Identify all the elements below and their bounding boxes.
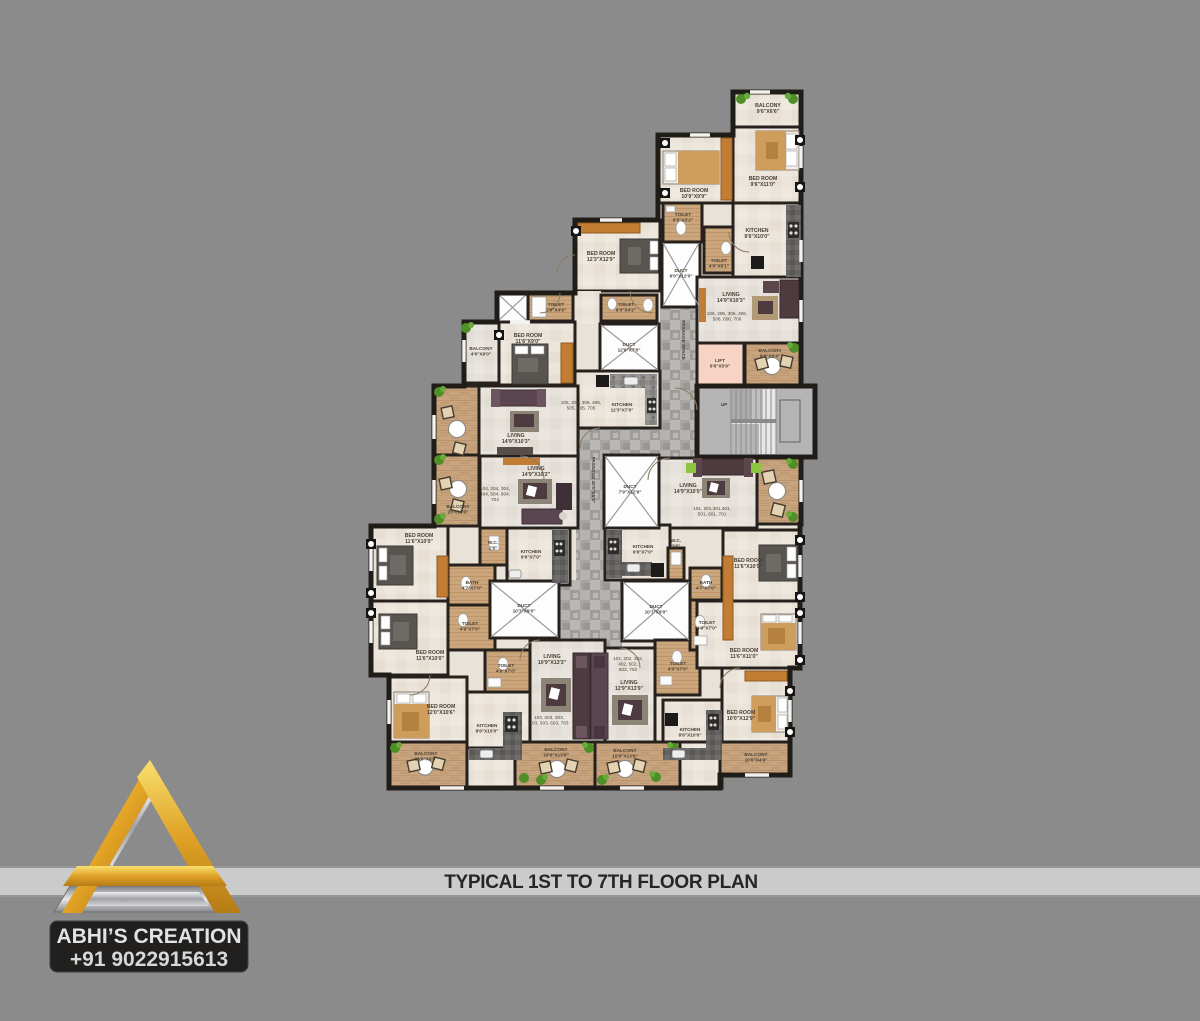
svg-text:TOILET4'0"X6'1": TOILET4'0"X6'1" bbox=[709, 258, 729, 268]
svg-text:PASSAGE SPACE: PASSAGE SPACE bbox=[681, 320, 686, 360]
svg-text:KITCHEN12'3"X7'0": KITCHEN12'3"X7'0" bbox=[611, 402, 634, 412]
svg-text:TOILET7'0"X4'9": TOILET7'0"X4'9" bbox=[546, 302, 566, 312]
svg-text:TYPICAL 1ST TO 7TH FLOOR PLAN: TYPICAL 1ST TO 7TH FLOOR PLAN bbox=[444, 872, 758, 893]
svg-text:BED ROOM10'9"X9'9": BED ROOM10'9"X9'9" bbox=[680, 188, 709, 200]
svg-text:TOILET4'0"X7'0": TOILET4'0"X7'0" bbox=[668, 661, 688, 671]
svg-text:KITCHEN8'6"X10'0": KITCHEN8'6"X10'0" bbox=[476, 723, 499, 733]
svg-text:TOILET6'0"X4'2": TOILET6'0"X4'2" bbox=[616, 302, 636, 312]
svg-text:BALCONY20'X10'0": BALCONY20'X10'0" bbox=[446, 504, 470, 514]
svg-text:BED ROOM11'6"X10'9": BED ROOM11'6"X10'9" bbox=[734, 558, 763, 570]
svg-text:BED ROOM11'6"X10'0": BED ROOM11'6"X10'0" bbox=[416, 650, 445, 662]
svg-text:BED ROOM12'0"X10'6": BED ROOM12'0"X10'6" bbox=[427, 704, 456, 716]
svg-text:KITCHEN9'9"X7'0": KITCHEN9'9"X7'0" bbox=[521, 549, 542, 559]
svg-text:BALCONY9'6"X6'6": BALCONY9'6"X6'6" bbox=[755, 103, 781, 115]
svg-text:+91 9022915613: +91 9022915613 bbox=[70, 948, 228, 971]
svg-text:W.C.2'6": W.C.2'6" bbox=[671, 538, 681, 548]
svg-text:KITCHEN9'6"X10'0": KITCHEN9'6"X10'0" bbox=[744, 228, 770, 240]
svg-text:KITCHEN8'6"X10'0": KITCHEN8'6"X10'0" bbox=[679, 727, 702, 737]
svg-text:BALCONY4'6"X9'0": BALCONY4'6"X9'0" bbox=[469, 346, 493, 356]
svg-text:W.C.2'6": W.C.2'6" bbox=[488, 540, 498, 550]
svg-text:BALCONY10'9"X13'6": BALCONY10'9"X13'6" bbox=[543, 747, 568, 757]
svg-text:BALCONY10'9"X13'6": BALCONY10'9"X13'6" bbox=[612, 748, 637, 758]
svg-text:BED ROOM10'0"X12'9": BED ROOM10'0"X12'9" bbox=[727, 710, 756, 722]
svg-text:TOILET4'9"X7'0": TOILET4'9"X7'0" bbox=[496, 663, 516, 673]
svg-text:UP: UP bbox=[721, 402, 728, 407]
svg-text:KITCHEN9'9"X7'0": KITCHEN9'9"X7'0" bbox=[633, 544, 654, 554]
svg-text:101, 201,301,401,501, 601, 701: 101, 201,301,401,501, 601, 701 bbox=[693, 506, 731, 516]
svg-text:106, 206, 306, 406,506, 606, 7: 106, 206, 306, 406,506, 606, 706 bbox=[707, 311, 747, 321]
svg-text:105, 205, 305, 405,505, 605, 7: 105, 205, 305, 405,505, 605, 705 bbox=[561, 400, 601, 410]
svg-text:BED ROOM11'6"X10'9": BED ROOM11'6"X10'9" bbox=[405, 533, 434, 545]
svg-text:BED ROOM11'6"X9'0": BED ROOM11'6"X9'0" bbox=[514, 333, 543, 345]
svg-text:BALCONY10'0"X6'9": BALCONY10'0"X6'9" bbox=[414, 751, 438, 761]
svg-text:TOILET4'9"X7'0": TOILET4'9"X7'0" bbox=[460, 621, 480, 631]
svg-text:BED ROOM9'6"X11'0": BED ROOM9'6"X11'0" bbox=[749, 176, 778, 188]
svg-text:BED ROOM11'6"X11'0": BED ROOM11'6"X11'0" bbox=[730, 648, 759, 660]
svg-text:103, 203, 303,403, 503, 603, 7: 103, 203, 303,403, 503, 603, 703 bbox=[529, 715, 568, 725]
svg-text:BED ROOM12'3"X12'9": BED ROOM12'3"X12'9" bbox=[587, 251, 616, 263]
svg-text:BALCONY10'0"X4'9": BALCONY10'0"X4'9" bbox=[744, 752, 768, 762]
svg-text:PASSAGE 40'0"X5'0": PASSAGE 40'0"X5'0" bbox=[591, 457, 596, 504]
svg-text:TOILET4'9"X7'0": TOILET4'9"X7'0" bbox=[697, 620, 717, 630]
svg-text:TOILET6'0"X3'2": TOILET6'0"X3'2" bbox=[673, 212, 693, 222]
svg-text:ABHI’S CREATION: ABHI’S CREATION bbox=[56, 925, 241, 948]
svg-text:BALCONY9'0"X6'4": BALCONY9'0"X6'4" bbox=[758, 348, 782, 358]
